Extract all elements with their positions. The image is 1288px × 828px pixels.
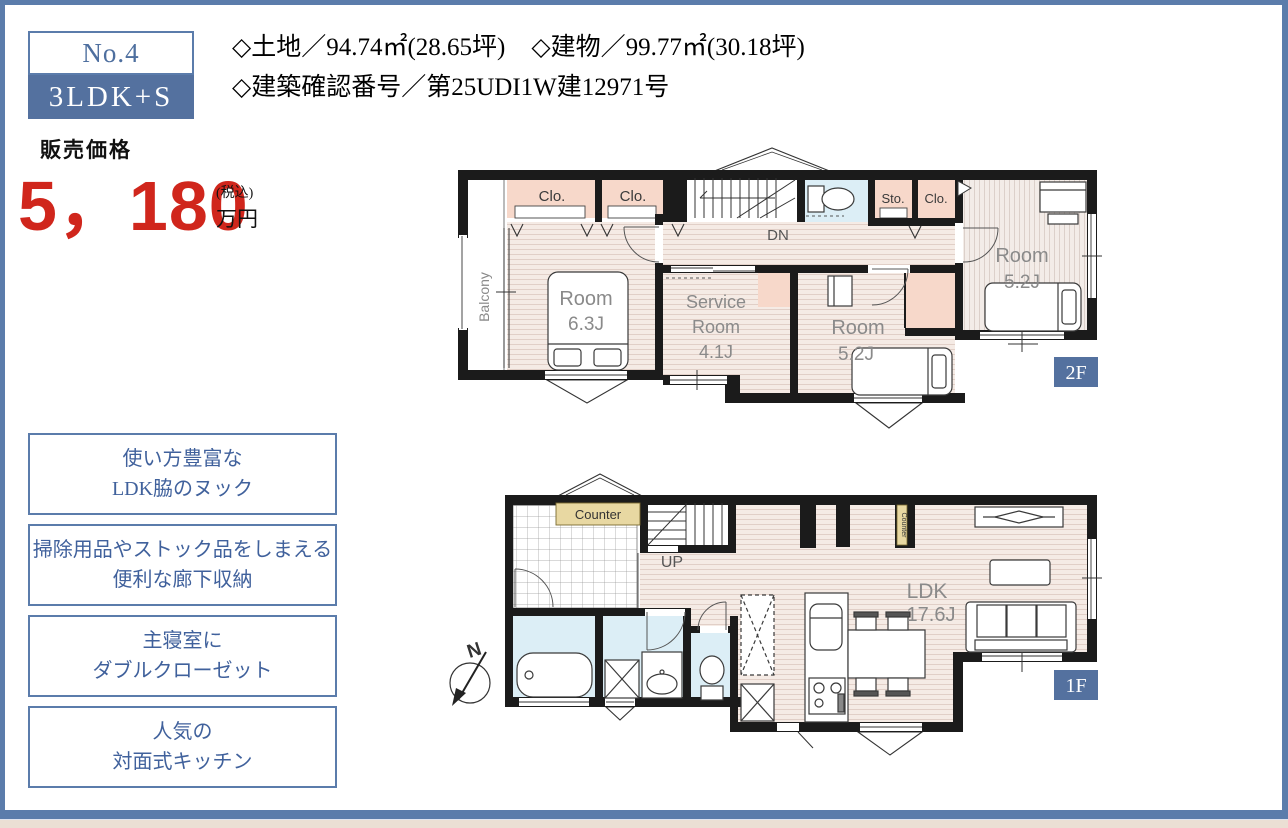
property-info-line2: ◇建築確認番号／第25UDI1W建12971号 bbox=[232, 68, 805, 108]
feature-box-kitchen: 人気の 対面式キッチン bbox=[28, 706, 337, 788]
price-amount: 5，180 bbox=[18, 150, 249, 251]
toilet-tank-1f bbox=[701, 686, 723, 700]
feature-text: LDK脇のヌック bbox=[112, 474, 253, 504]
2f-badge: 2F bbox=[1054, 357, 1098, 387]
feature-box-hall-storage: 掃除用品やストック品をしまえる 便利な廊下収納 bbox=[28, 524, 337, 606]
service-line2: Room bbox=[692, 317, 740, 337]
chair bbox=[856, 678, 876, 691]
counter-box: Counter bbox=[556, 503, 640, 525]
service-line1: Service bbox=[686, 292, 746, 312]
room3-name: Room bbox=[831, 317, 884, 339]
bottom-beige-strip bbox=[0, 819, 1288, 828]
desk-small bbox=[828, 276, 852, 306]
coffee-table bbox=[990, 560, 1050, 585]
ldk-size: 17.6J bbox=[907, 604, 956, 626]
feature-text: 人気の bbox=[153, 717, 213, 747]
north-label: N bbox=[465, 639, 485, 663]
chair bbox=[888, 678, 908, 691]
closet2-label: Clo. bbox=[620, 188, 647, 205]
vanity-sink bbox=[647, 674, 677, 694]
1f-badge: 1F bbox=[1054, 670, 1098, 700]
chair-back bbox=[886, 691, 910, 696]
chair bbox=[888, 617, 908, 630]
counter-side-label: Counter bbox=[900, 513, 907, 539]
chair bbox=[856, 617, 876, 630]
kitchen-sink bbox=[810, 604, 842, 650]
building-area: ◇建物／99.77㎡(30.18坪) bbox=[531, 34, 804, 61]
room2-size: 5.2J bbox=[1004, 272, 1040, 293]
ldk-name: LDK bbox=[907, 580, 948, 603]
feature-list: 使い方豊富な LDK脇のヌック 掃除用品やストック品をしまえる 便利な廊下収納 … bbox=[28, 433, 337, 797]
dn-label: DN bbox=[767, 227, 789, 244]
feature-text: 対面式キッチン bbox=[113, 747, 253, 777]
floor-plan-2f: Balcony Clo. Clo. Sto. Clo. DN Room 6.3J… bbox=[440, 140, 1110, 440]
service-line3: 4.1J bbox=[699, 342, 733, 362]
toilet-bowl-1f bbox=[700, 656, 724, 684]
property-info-line1: ◇土地／94.74㎡(28.65坪)◇建物／99.77㎡(30.18坪) bbox=[232, 28, 805, 68]
dining-table bbox=[848, 630, 925, 678]
1f-badge-text: 1F bbox=[1065, 675, 1086, 697]
feature-text: 便利な廊下収納 bbox=[113, 565, 253, 595]
storage-label: Sto. bbox=[881, 191, 904, 206]
up-label: UP bbox=[661, 554, 683, 571]
feature-box-nook: 使い方豊富な LDK脇のヌック bbox=[28, 433, 337, 515]
land-area: ◇土地／94.74㎡(28.65坪) bbox=[232, 34, 505, 61]
bathtub-drain bbox=[525, 671, 533, 679]
unit-layout: 3LDK+S bbox=[28, 75, 194, 119]
price-tax-note: (税込) bbox=[216, 182, 258, 202]
service-closet bbox=[758, 273, 792, 307]
room1-name: Room bbox=[559, 288, 612, 310]
balcony-label: Balcony bbox=[476, 272, 492, 322]
feature-text: 掃除用品やストック品をしまえる bbox=[33, 535, 332, 565]
feature-text: 主寝室に bbox=[143, 626, 223, 656]
room1-size: 6.3J bbox=[568, 314, 604, 335]
price-unit: 万円 bbox=[216, 203, 258, 233]
feature-text: ダブルクローゼット bbox=[93, 656, 273, 686]
feature-text: 使い方豊富な bbox=[123, 444, 243, 474]
toilet-bowl bbox=[822, 188, 854, 210]
unit-badge: No.4 3LDK+S bbox=[28, 31, 194, 119]
floor-plan-1f: Counter N UP LDK 17.6J Counter 1F bbox=[430, 450, 1110, 780]
desk bbox=[1040, 182, 1086, 212]
feature-box-double-closet: 主寝室に ダブルクローゼット bbox=[28, 615, 337, 697]
bottom-room-closet bbox=[905, 273, 955, 328]
price-unit-block: (税込) 万円 bbox=[216, 182, 258, 233]
chair-back bbox=[854, 691, 878, 696]
closet1-label: Clo. bbox=[539, 188, 566, 205]
hall-floor bbox=[663, 222, 955, 265]
counter-top-label: Counter bbox=[575, 507, 622, 522]
2f-badge-text: 2F bbox=[1065, 362, 1086, 384]
north-compass: N bbox=[450, 639, 490, 706]
confirmation-number: ◇建築確認番号／第25UDI1W建12971号 bbox=[232, 74, 669, 101]
room3-size: 5.2J bbox=[838, 344, 874, 365]
real-estate-flyer: { "page": { "frame_color": "#5b7cab", "b… bbox=[0, 0, 1288, 828]
unit-number: No.4 bbox=[28, 31, 194, 75]
desk-chair bbox=[1048, 214, 1078, 224]
closet3-label: Clo. bbox=[924, 191, 947, 206]
room2-name: Room bbox=[995, 245, 1048, 267]
chair-back bbox=[854, 612, 878, 617]
property-info: ◇土地／94.74㎡(28.65坪)◇建物／99.77㎡(30.18坪) ◇建築… bbox=[232, 28, 805, 108]
